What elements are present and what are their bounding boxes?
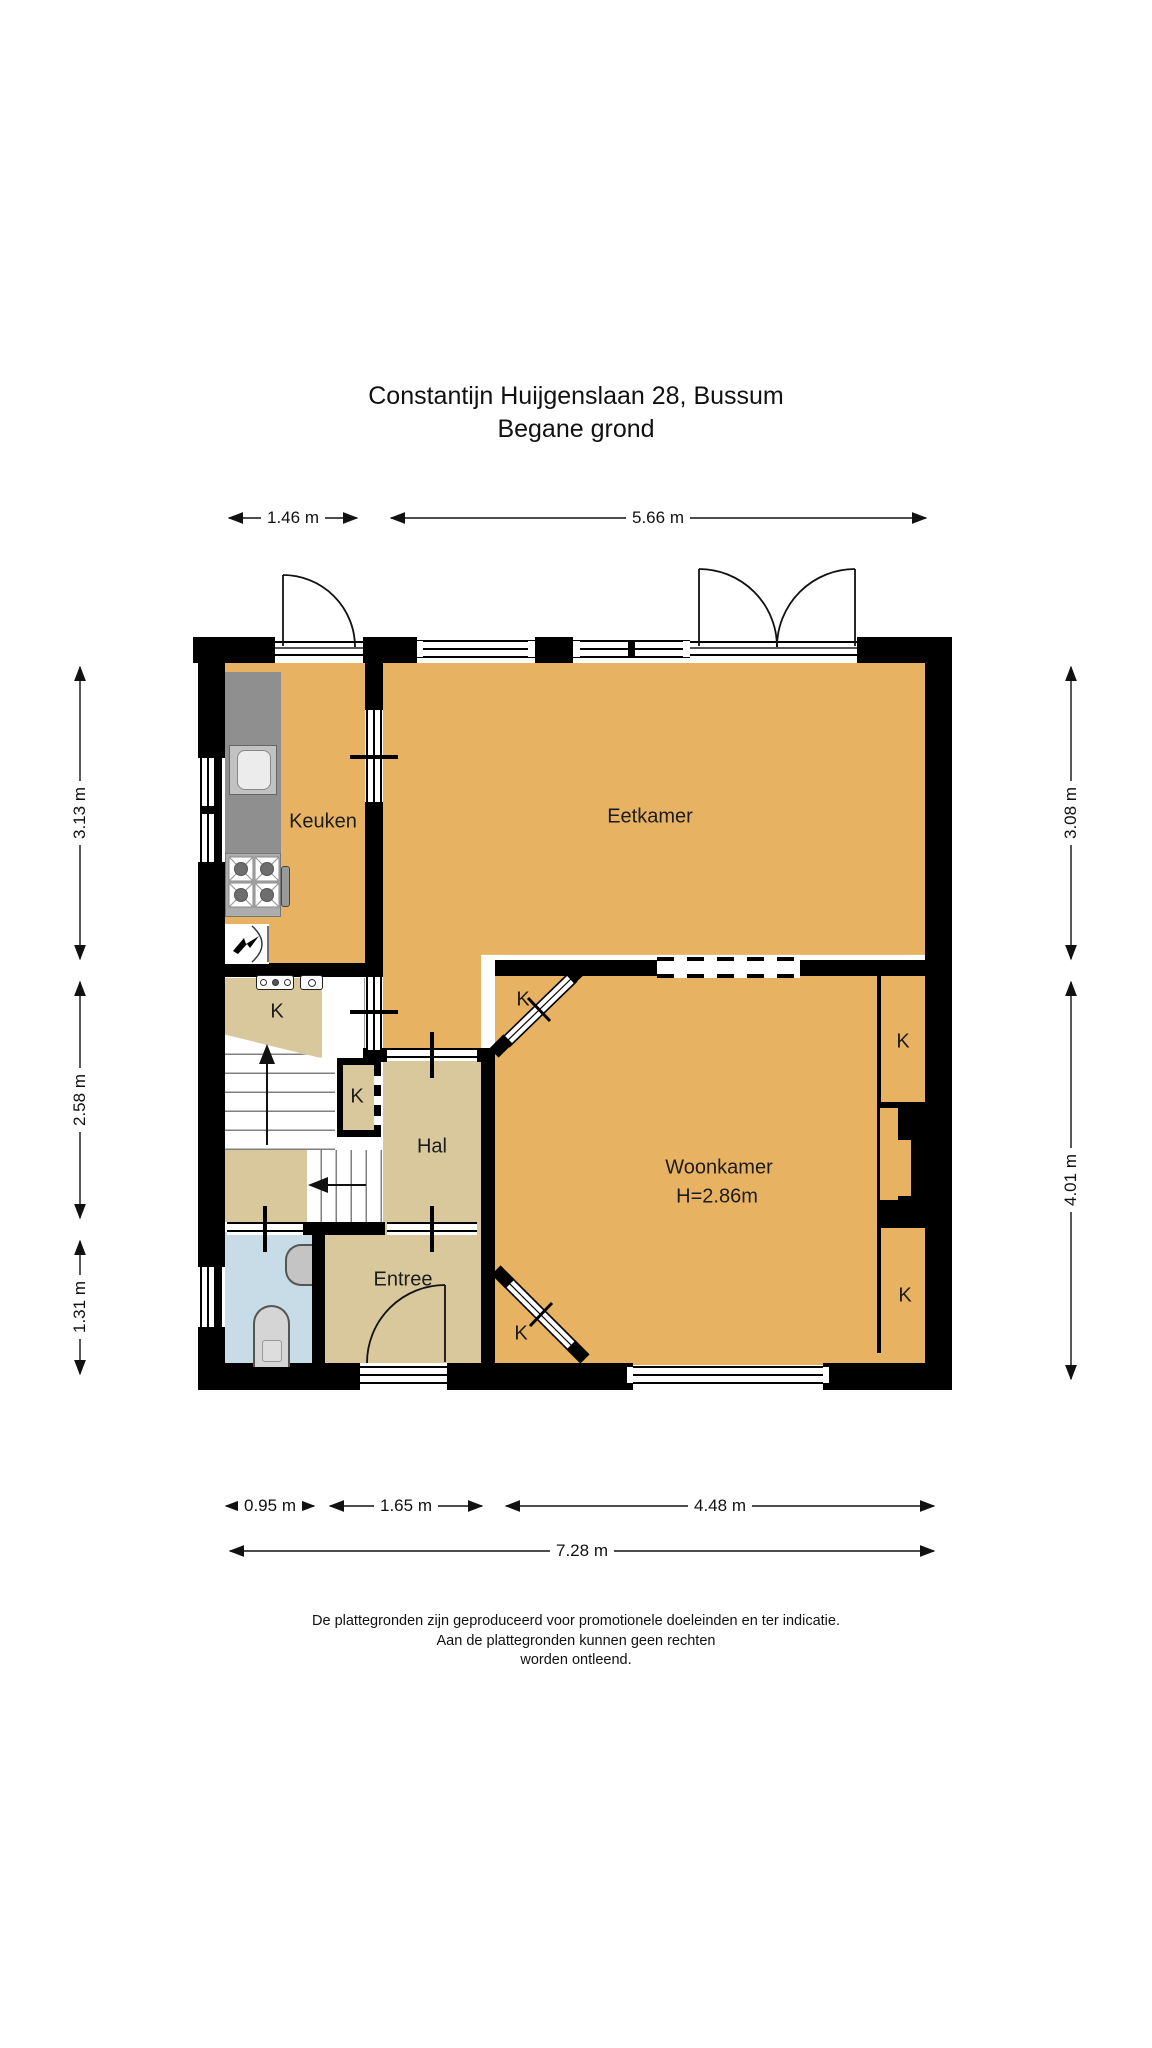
dim-bottom-3: 4.48 m [688,1496,752,1516]
dim-right-2: 4.01 m [1061,1148,1081,1212]
label-entree: Entree [374,1269,433,1292]
dimension-lines [80,518,1071,1551]
dim-left-3: 1.31 m [70,1275,90,1339]
disclaimer-line: Aan de plattegronden kunnen geen rechten [96,1632,1056,1652]
plan-overlay [0,0,1152,2048]
label-kast-right-top: K [896,1031,909,1054]
label-kast-woonkamer-tl: K [516,989,529,1012]
stair-arrow-up [259,1044,275,1145]
boiler-flame-icon [233,936,259,954]
label-keuken: Keuken [289,811,357,834]
disclaimer-text: De plattegronden zijn geproduceerd voor … [96,1612,1056,1671]
stair-arrow-left [308,1177,366,1193]
dim-right-1: 3.08 m [1061,781,1081,845]
floorplan-canvas: Constantijn Huijgenslaan 28, Bussum Bega… [0,0,1152,2048]
boiler-door-arc [252,926,268,962]
dim-top-1: 1.46 m [261,508,325,528]
dim-left-1: 3.13 m [70,781,90,845]
dim-top-2: 5.66 m [626,508,690,528]
label-woonkamer: Woonkamer [665,1157,772,1180]
disclaimer-line: worden ontleend. [96,1651,1056,1671]
dim-bottom-1: 0.95 m [238,1496,302,1516]
dim-bottom-2: 1.65 m [374,1496,438,1516]
dim-left-2: 2.58 m [70,1068,90,1132]
dim-total-width: 7.28 m [550,1541,614,1561]
label-eetkamer: Eetkamer [607,806,693,829]
french-doors-arcs [699,569,855,647]
label-hal: Hal [417,1136,447,1159]
back-door-arc [283,575,355,647]
label-kast-understairs: K [350,1086,363,1109]
label-kast-meterkast: K [270,1001,283,1024]
diagonal-door-bottom-left [496,1270,585,1359]
stove-burners [229,857,279,907]
diagonal-door-top-left [494,966,584,1053]
disclaimer-line: De plattegronden zijn geproduceerd voor … [96,1612,1056,1632]
label-kast-right-bottom: K [898,1285,911,1308]
label-kast-woonkamer-bl: K [514,1323,527,1346]
front-door-arc [367,1285,445,1363]
label-woonkamer-height: H=2.86m [676,1186,758,1209]
